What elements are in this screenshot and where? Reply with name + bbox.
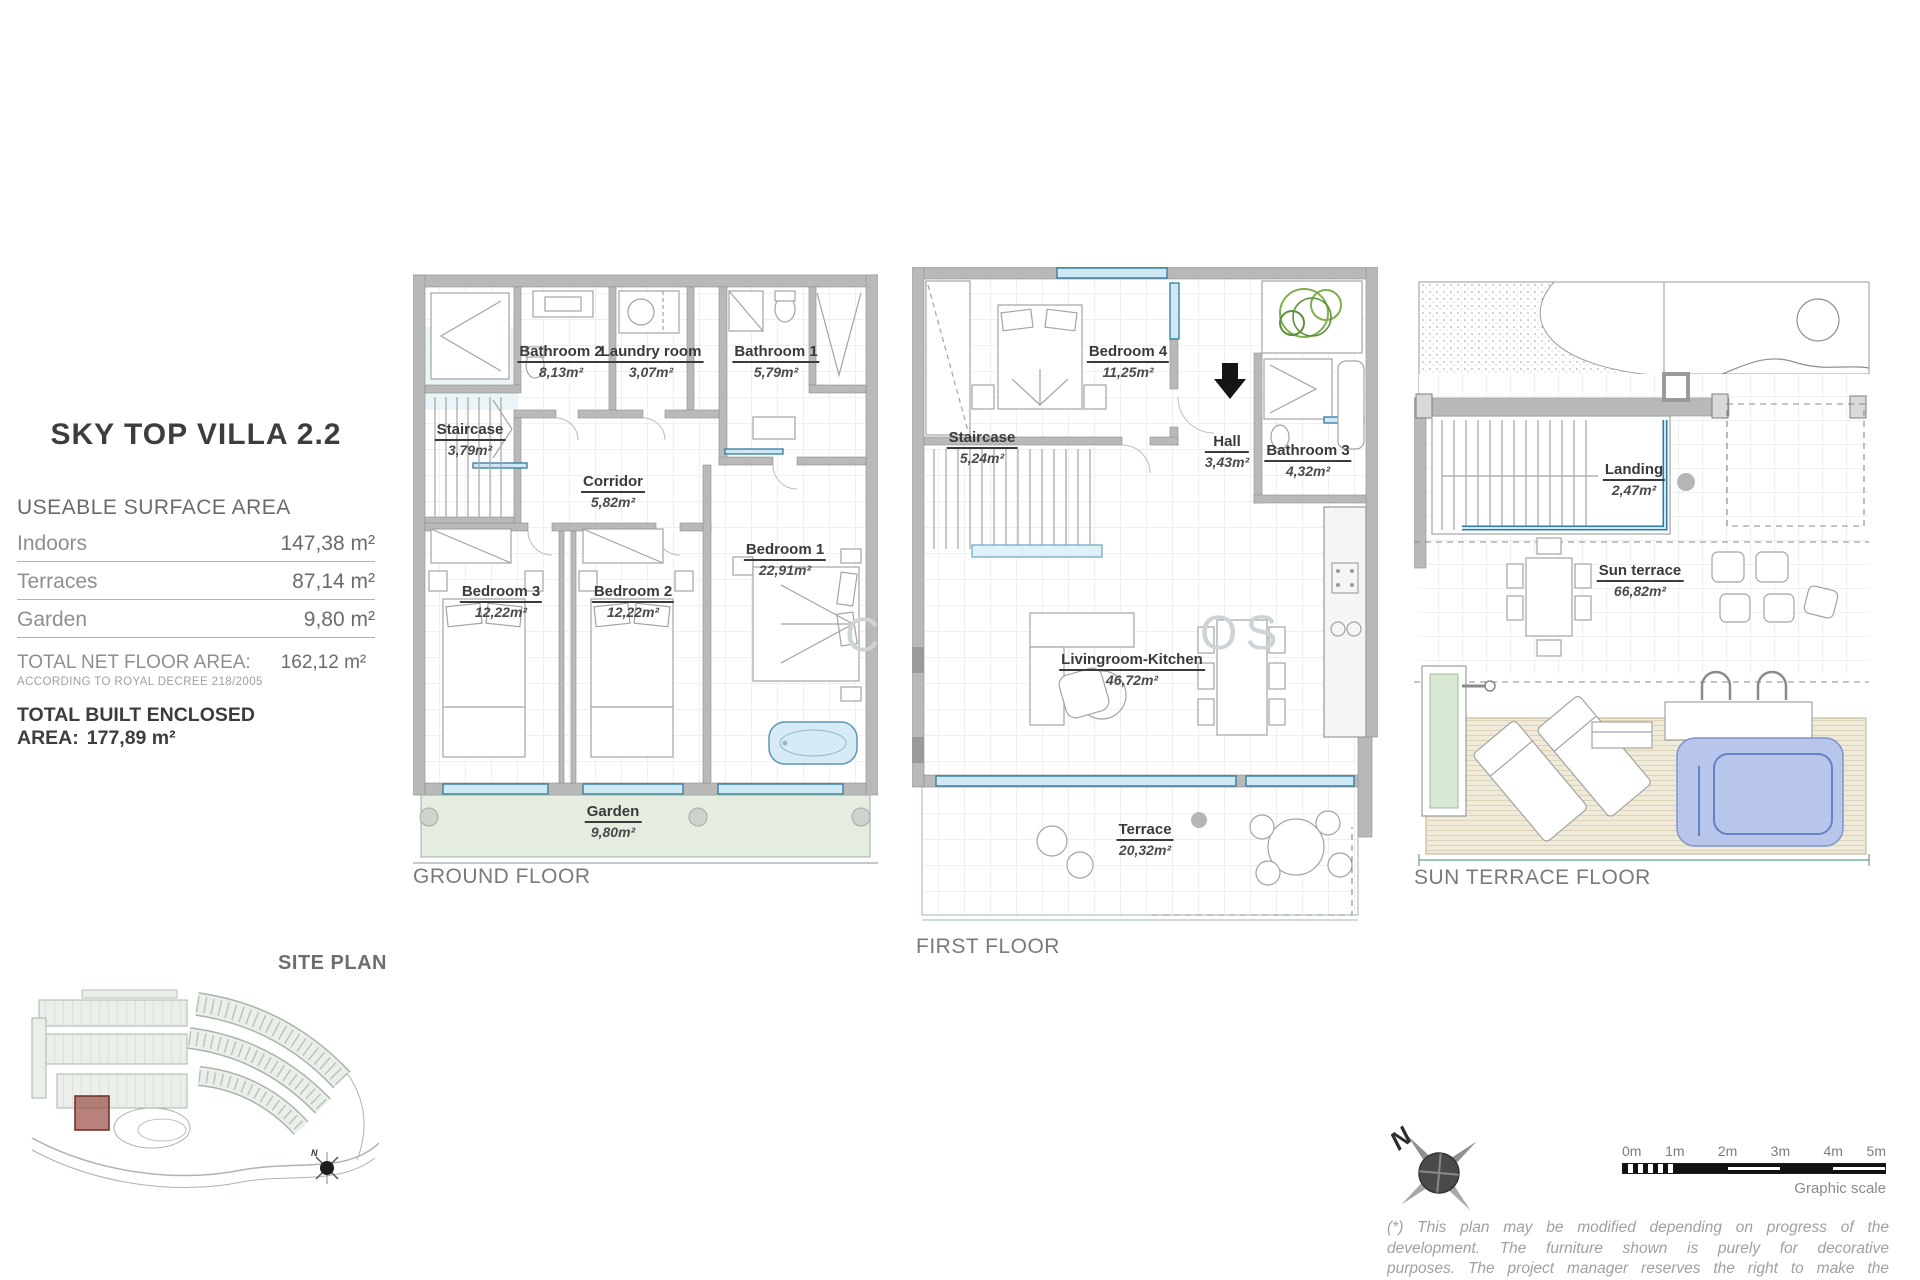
room-label-garden: Garden9,80m²	[585, 803, 642, 840]
room-label-livingroom-kitchen: Livingroom-Kitchen46,72m²	[1059, 651, 1205, 688]
window-top	[1057, 268, 1167, 278]
info-panel: SKY TOP VILLA 2.2 USEABLE SURFACE AREA I…	[17, 418, 375, 750]
room-label-bathroom-2: Bathroom 28,13m²	[517, 343, 604, 380]
sun-terrace-floor-title: SUN TERRACE FLOOR	[1414, 866, 1651, 890]
outdoor-shower	[1462, 681, 1495, 691]
site-plan: SITE PLAN	[27, 952, 387, 1202]
window-bedroom4	[1170, 283, 1179, 339]
north-compass: N	[1384, 1118, 1494, 1228]
total-net-floor-area: TOTAL NET FLOOR AREA:162,12 m² ACCORDING…	[17, 652, 375, 688]
column	[1677, 473, 1695, 491]
wall-inset-2	[912, 737, 924, 763]
graphic-scale: 0m 1m 2m 3m 4m 5m Graphic scale	[1622, 1143, 1886, 1197]
room-label-landing: Landing2,47m²	[1603, 461, 1665, 498]
surface-row-terraces: Terraces 87,14 m²	[17, 562, 375, 600]
site-plan-drawing: N	[27, 978, 387, 1200]
surface-row-indoors: Indoors 147,38 m²	[17, 524, 375, 562]
room-label-bedroom-1: Bedroom 122,91m²	[744, 541, 826, 578]
room-label-hall: Hall3,43m²	[1205, 433, 1249, 470]
window-livingroom-1	[936, 776, 1236, 786]
plant-decoration	[1262, 281, 1362, 353]
ground-floor-title: GROUND FLOOR	[413, 865, 591, 889]
curved-rows	[189, 1004, 364, 1160]
bathtub	[769, 722, 857, 764]
room-label-bathroom-1: Bathroom 15,79m²	[732, 343, 819, 380]
highlighted-unit	[75, 1096, 109, 1130]
room-label-laundry-room: Laundry room3,07m²	[599, 343, 704, 380]
ground-floor-plan: Bathroom 28,13m² Laundry room3,07m² Bath…	[413, 267, 878, 927]
kitchen-counter	[1324, 507, 1366, 737]
garden-strip	[420, 795, 870, 857]
room-label-corridor: Corridor5,82m²	[581, 473, 645, 510]
royal-decree-note: ACCORDING TO ROYAL DECREE 218/2005	[17, 676, 375, 688]
window-livingroom-2	[1246, 776, 1354, 786]
room-label-bedroom-4: Bedroom 411,25m²	[1087, 343, 1169, 380]
disclaimer-text: (*) This plan may be modified depending …	[1387, 1218, 1889, 1280]
surface-row-garden: Garden 9,80 m²	[17, 600, 375, 638]
laundry-fixtures	[619, 291, 679, 333]
first-floor-title: FIRST FLOOR	[916, 935, 1060, 959]
room-label-sun-terrace: Sun terrace66,82m²	[1597, 562, 1684, 599]
terraced-rows	[32, 990, 187, 1108]
deck-side-table	[1592, 722, 1652, 748]
wall-inset-1	[912, 647, 924, 673]
pool	[1677, 738, 1843, 846]
north-label: N	[1384, 1120, 1418, 1156]
page-title: SKY TOP VILLA 2.2	[17, 418, 375, 452]
room-label-terrace: Terrace20,32m²	[1116, 821, 1173, 858]
closet-top-left	[431, 293, 509, 379]
scale-caption: Graphic scale	[1622, 1180, 1886, 1197]
pond	[114, 1108, 190, 1148]
site-plan-title: SITE PLAN	[278, 952, 387, 975]
compass-icon: N	[1384, 1118, 1494, 1228]
room-label-bedroom-2: Bedroom 212,22m²	[592, 583, 674, 620]
dining-table	[1198, 620, 1285, 735]
room-label-staircase-gf: Staircase3,79m²	[435, 421, 506, 458]
floorplan-sheet: SKY TOP VILLA 2.2 USEABLE SURFACE AREA I…	[0, 0, 1920, 1280]
planter	[1422, 666, 1466, 816]
first-floor-plan: Bedroom 411,25m² Staircase5,24m² Hall3,4…	[912, 267, 1378, 967]
svg-text:N: N	[311, 1148, 318, 1158]
scale-bar	[1622, 1163, 1886, 1174]
room-label-staircase-ff: Staircase5,24m²	[947, 429, 1018, 466]
site-compass-icon: N	[311, 1148, 338, 1184]
total-built-area: TOTAL BUILT ENCLOSED AREA:177,89 m²	[17, 704, 375, 750]
surface-area-heading: USEABLE SURFACE AREA	[17, 496, 375, 520]
room-label-bathroom-3: Bathroom 34,32m²	[1264, 442, 1351, 479]
room-label-bedroom-3: Bedroom 312,22m²	[460, 583, 542, 620]
sun-terrace-floor-plan: Landing2,47m² Sun terrace66,82m² SUN TER…	[1414, 276, 1874, 916]
scale-ticks: 0m 1m 2m 3m 4m 5m	[1622, 1143, 1886, 1161]
roof-access	[1664, 374, 1688, 400]
